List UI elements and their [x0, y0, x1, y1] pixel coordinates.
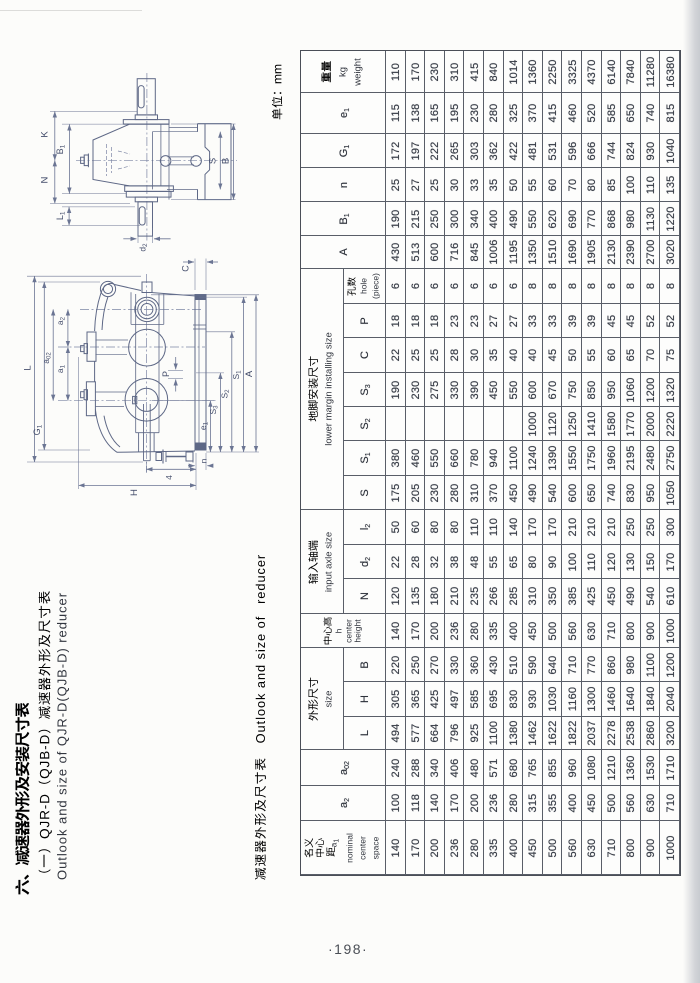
svg-text:a2: a2: [55, 316, 67, 325]
svg-text:e1: e1: [198, 421, 210, 430]
svg-text:S1: S1: [231, 370, 243, 380]
svg-text:a1: a1: [55, 364, 67, 373]
svg-text:N: N: [40, 176, 51, 183]
svg-text:C: C: [181, 265, 191, 272]
svg-text:a02: a02: [41, 352, 53, 364]
svg-text:B: B: [221, 158, 232, 164]
svg-text:G1: G1: [32, 424, 44, 435]
svg-text:S2: S2: [220, 389, 232, 399]
svg-text:A: A: [244, 370, 255, 377]
svg-text:d2: d2: [138, 243, 150, 252]
svg-text:B1: B1: [55, 144, 67, 154]
svg-text:n: n: [199, 458, 209, 463]
svg-text:H: H: [129, 489, 140, 496]
svg-text:L: L: [24, 365, 34, 370]
svg-text:S3: S3: [208, 405, 220, 415]
svg-text:S: S: [208, 158, 219, 164]
svg-text:K: K: [40, 131, 51, 138]
svg-text:4: 4: [164, 475, 174, 480]
svg-text:P: P: [161, 371, 171, 377]
svg-text:L1: L1: [55, 211, 67, 220]
